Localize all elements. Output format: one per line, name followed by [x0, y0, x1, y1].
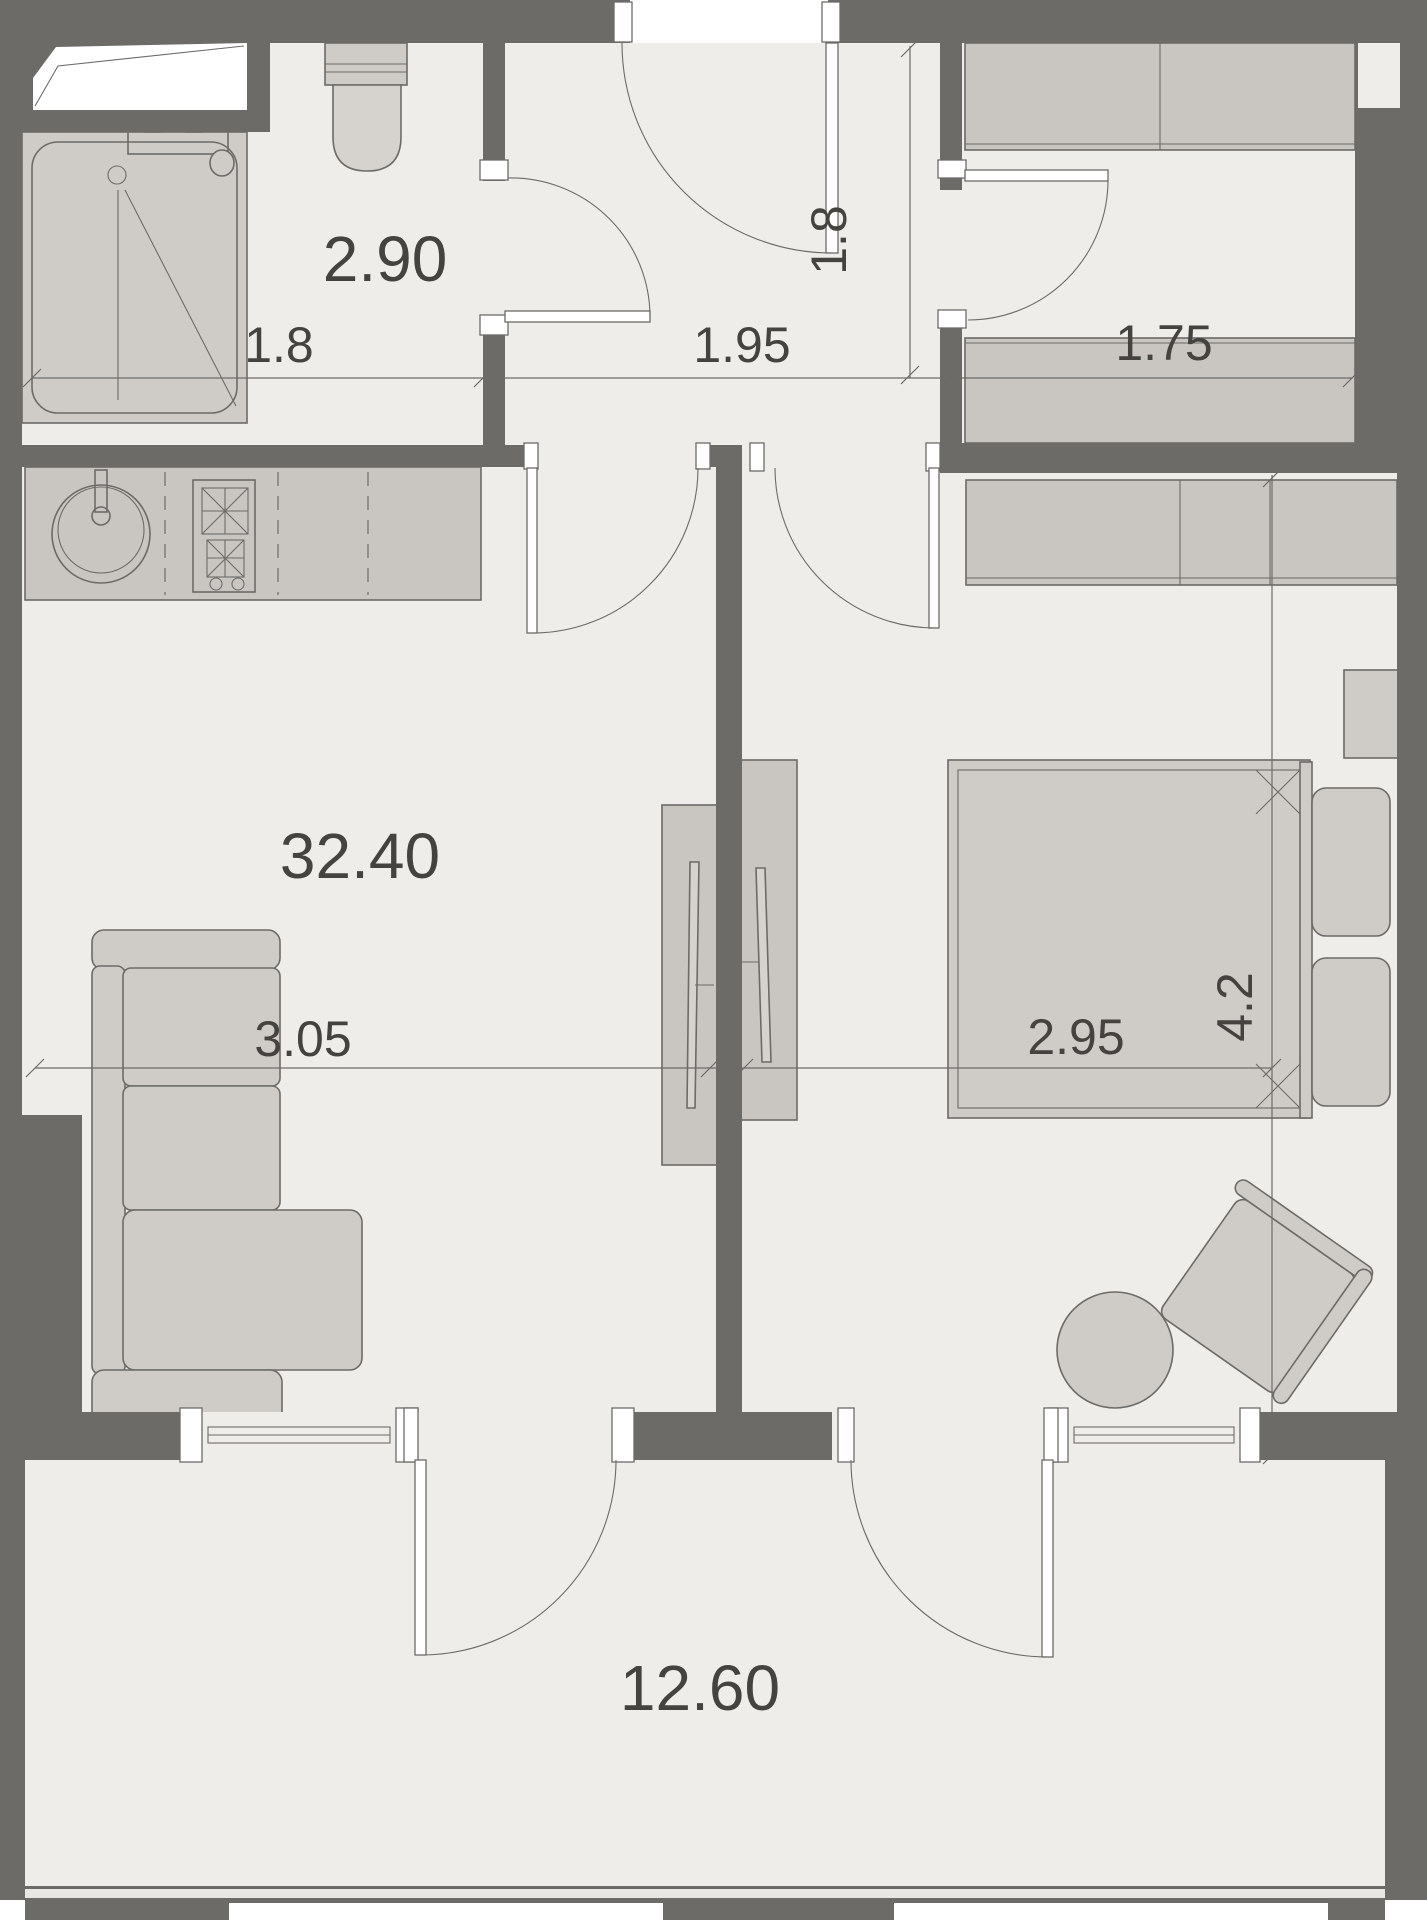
wall-bath-kitchen — [0, 445, 505, 467]
label-living-area: 32.40 — [280, 820, 440, 892]
parapet-glass-panel — [229, 1903, 663, 1920]
bedroom-window — [1048, 1408, 1260, 1462]
bathtub-spout-icon — [210, 150, 234, 176]
label-bedroom-depth: 4.2 — [1207, 972, 1263, 1042]
bathtub — [22, 114, 247, 423]
wall-bedroom-top — [940, 443, 1355, 473]
toilet — [325, 43, 407, 171]
wall-niche — [1358, 43, 1400, 108]
kitchen-counter — [25, 467, 481, 600]
label-balcony-area: 12.60 — [620, 1652, 780, 1724]
bedroom-door-leaf — [929, 468, 939, 628]
label-storage-width: 1.75 — [1115, 315, 1212, 371]
floor-plan-canvas: 2.90 1.8 1.95 1.75 1.8 32.40 3.05 2.95 4… — [0, 0, 1427, 1920]
wall-left-step — [0, 1115, 82, 1460]
living-balcony-door-leaf — [415, 1460, 426, 1655]
pillow — [1312, 958, 1390, 1106]
wall-balcony-left — [0, 1460, 25, 1900]
exterior-stair-notch — [33, 43, 247, 110]
label-entry-depth: 1.8 — [801, 205, 857, 275]
storage-wardrobe-top — [965, 43, 1355, 150]
wall-balcony-right — [1385, 1460, 1427, 1900]
bathroom-door-leaf — [505, 311, 650, 322]
floor-plan-page: 2.90 1.8 1.95 1.75 1.8 32.40 3.05 2.95 4… — [0, 0, 1427, 1920]
wall-partition — [716, 467, 742, 1412]
wall-right-bedroom — [1397, 473, 1427, 1460]
living-window — [180, 1408, 418, 1462]
storage-door-leaf — [965, 170, 1108, 181]
tv-panel-bedroom — [740, 760, 797, 1120]
bedroom-balcony-door-leaf — [1042, 1460, 1053, 1657]
entrance-exterior — [630, 0, 828, 43]
living-door-leaf — [527, 468, 537, 633]
label-hallway-width: 1.95 — [693, 317, 790, 373]
label-bathroom-width: 1.8 — [244, 317, 314, 373]
round-table — [1057, 1292, 1173, 1408]
label-bedroom-width: 2.95 — [1027, 1009, 1124, 1065]
sofa-chaise — [123, 1210, 362, 1370]
label-living-width: 3.05 — [254, 1011, 351, 1067]
nightstand — [1344, 670, 1398, 758]
wall-bath-hall-lower — [483, 317, 505, 445]
balcony-parapet — [25, 1886, 1385, 1920]
parapet-glass-panel — [894, 1903, 1328, 1920]
wall-left — [0, 43, 22, 1115]
wall-hall-storage-lower — [940, 315, 962, 445]
label-bathroom-area: 2.90 — [323, 223, 448, 295]
headboard — [1300, 762, 1312, 1118]
pillow — [1312, 788, 1390, 936]
bedroom-wardrobe — [966, 480, 1397, 585]
